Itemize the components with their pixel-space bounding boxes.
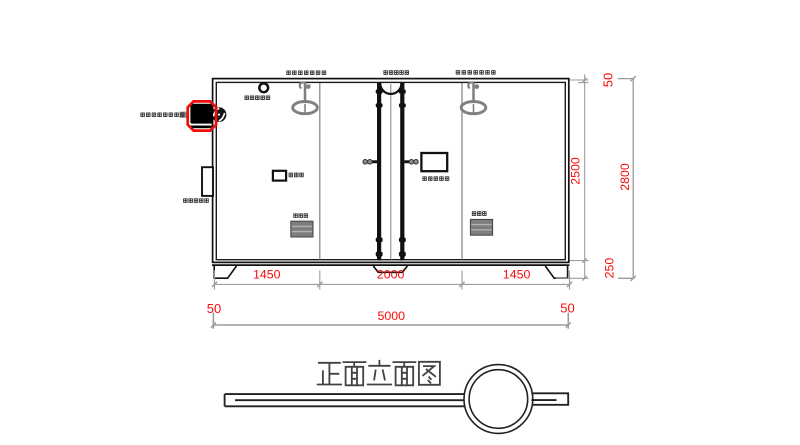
svg-text:2800: 2800 bbox=[618, 163, 632, 191]
svg-text:50: 50 bbox=[560, 300, 574, 315]
svg-text:250: 250 bbox=[603, 258, 617, 279]
svg-text:2000: 2000 bbox=[377, 267, 405, 281]
svg-text:1450: 1450 bbox=[253, 268, 281, 282]
svg-text:2500: 2500 bbox=[569, 157, 583, 185]
svg-text:50: 50 bbox=[207, 301, 221, 316]
svg-text:5000: 5000 bbox=[378, 309, 406, 323]
svg-text:1450: 1450 bbox=[503, 268, 531, 282]
svg-text:50: 50 bbox=[601, 73, 616, 87]
